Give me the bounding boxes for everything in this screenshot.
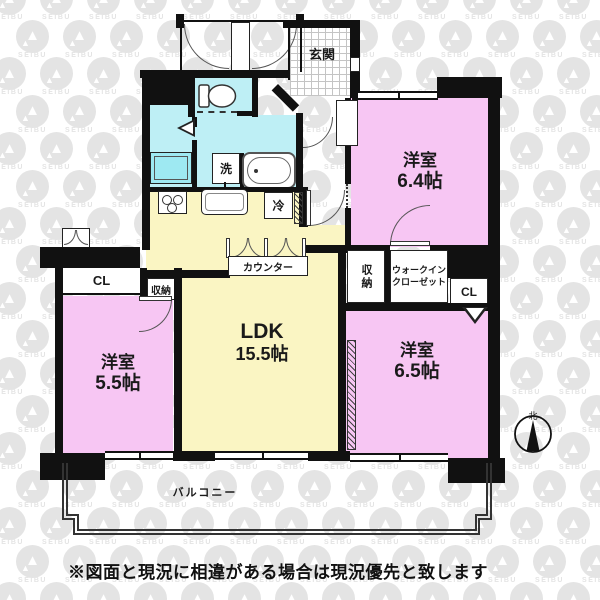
genkan-line [288, 28, 290, 80]
counter-box: カウンター [228, 256, 308, 276]
window [215, 451, 308, 460]
wall [142, 105, 150, 190]
door-leaf [306, 190, 311, 226]
wall-block [40, 453, 105, 480]
shoe-cabinet [336, 100, 358, 146]
balcony-rail [490, 463, 492, 520]
wall [338, 248, 346, 460]
wall [173, 451, 215, 461]
wall [146, 270, 230, 278]
storage-center-label: 収納 [347, 252, 385, 302]
stove-icon [158, 191, 187, 214]
laundry-box: 洗 [212, 153, 240, 184]
room-size: 6.4帖 [397, 171, 442, 193]
wall [488, 97, 500, 463]
balcony-label: バルコニー [150, 485, 260, 499]
wall [142, 190, 150, 250]
bedroom-65-label: 洋室 6.5帖 [346, 338, 488, 386]
room-name: 洋室 [403, 151, 437, 171]
floorplan-page: ▲▲SEIBU▲▲SEIBU▲▲SEIBU▲▲SEIBU▲▲SEIBU▲▲SEI… [0, 0, 600, 600]
fridge-label: 冷 [265, 193, 292, 218]
wic-line2: クローゼット [392, 277, 446, 288]
vanity-sink [150, 152, 192, 184]
entry-door [350, 57, 360, 72]
wall [283, 20, 357, 28]
compass-icon: 北 [511, 406, 555, 456]
room-name: 洋室 [101, 353, 135, 373]
window [350, 453, 448, 462]
wall [188, 73, 195, 117]
balcony-rail [77, 529, 477, 531]
wall-block [437, 77, 502, 98]
room-name: LDK [240, 320, 283, 344]
balcony-rail [486, 463, 488, 516]
wall-block [40, 247, 140, 268]
porch-line [180, 20, 182, 72]
balcony-rail [475, 514, 477, 531]
wic-line1: ウォークイン [392, 265, 446, 276]
wall-block [448, 247, 488, 278]
door-leaf [302, 238, 306, 258]
counter-label: カウンター [229, 257, 307, 275]
balcony-rail [478, 518, 480, 535]
folding-door-icon [466, 308, 484, 320]
compass-north-label: 北 [528, 411, 537, 421]
bathtub-icon [242, 152, 296, 189]
wall [192, 140, 197, 190]
disclaimer-text: ※図面と現況に相違がある場合は現況優先と致します [68, 558, 488, 583]
walk-in-closet-label: ウォークイン クローゼット [390, 250, 448, 303]
bedroom-55-label: 洋室 5.5帖 [63, 350, 173, 398]
porch-post [231, 22, 250, 71]
bedroom-64-label: 洋室 6.4帖 [352, 148, 488, 196]
floorplan: 洗 冷 カウンター [0, 0, 600, 600]
door-arc [309, 190, 345, 226]
window [358, 91, 438, 100]
room-name: 洋室 [400, 341, 434, 361]
wall [237, 111, 254, 116]
door-leaf [390, 241, 430, 246]
door-arc [184, 24, 229, 69]
room-size: 6.5帖 [394, 361, 439, 383]
storage-left-label: 収納 [147, 278, 175, 300]
balcony-rail [66, 463, 68, 516]
toilet-icon [198, 81, 238, 111]
balcony-rail [73, 533, 480, 535]
room-size: 15.5帖 [235, 344, 288, 365]
faucet [224, 182, 226, 189]
ldk-label: LDK 15.5帖 [202, 316, 322, 368]
laundry-label: 洗 [213, 154, 239, 183]
wall-block [448, 458, 505, 483]
wall-block [142, 73, 188, 105]
wall [252, 70, 258, 117]
genkan-label: 玄関 [296, 44, 348, 62]
wall [308, 451, 350, 461]
wall [296, 113, 303, 190]
room-size: 5.5帖 [95, 373, 140, 395]
wall [174, 268, 182, 458]
wall [345, 208, 351, 245]
wall [55, 268, 63, 458]
closet-right-label: CL [450, 278, 488, 305]
closet-left-label: CL [63, 268, 140, 293]
balcony-rail [62, 463, 64, 520]
opening [346, 184, 348, 208]
fridge-box: 冷 [264, 192, 293, 219]
folding-door-icon [181, 122, 193, 134]
door-arc [303, 117, 333, 148]
kitchen-sink [201, 189, 248, 215]
sliding-door [197, 111, 237, 113]
wall-hatch [294, 192, 303, 224]
window [105, 451, 173, 460]
